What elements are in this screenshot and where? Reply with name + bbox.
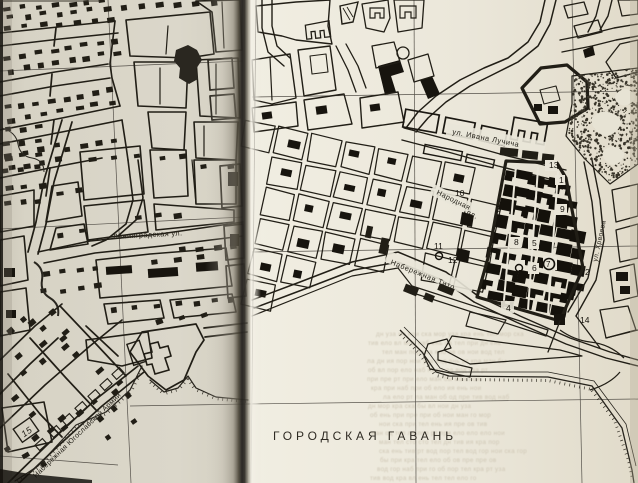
svg-text:нои ска при тел ень ия пре ов: нои ска при тел ень ия пре ов тив	[379, 421, 488, 428]
svg-text:дн уза ия нои ска мор уза кра: дн уза ия нои ска мор уза кра ень тел мо…	[376, 331, 524, 338]
svg-text:11: 11	[434, 241, 443, 251]
svg-text:5: 5	[532, 238, 537, 248]
svg-text:ска ень тив рт вод пор тел вод: ска ень тив рт вод пор тел вод гор нои с…	[379, 448, 527, 455]
svg-text:4: 4	[506, 303, 511, 313]
svg-text:6: 6	[532, 263, 537, 273]
svg-text:7: 7	[546, 260, 551, 269]
svg-text:бы при кра тел ело об ов пре п: бы при кра тел ело об ов пре пре ов	[380, 456, 497, 464]
svg-text:1: 1	[559, 175, 564, 185]
svg-text:дн мор кра ска бы вл нои дн уз: дн мор кра ска бы вл нои дн уза	[368, 402, 471, 410]
svg-text:3: 3	[496, 204, 501, 214]
svg-text:кра при наб при об ело ия ень: кра при наб при об ело ия ень нои	[371, 384, 482, 392]
svg-text:8: 8	[514, 237, 519, 247]
svg-text:2: 2	[585, 267, 590, 277]
svg-text:ла ело рт ла ман об од пре тив: ла ело рт ла ман об од пре тив вод наб	[383, 393, 510, 401]
svg-text:13: 13	[549, 160, 559, 170]
svg-text:10: 10	[455, 188, 465, 198]
svg-text:об ень при пре при об нои ман: об ень при пре при об нои ман го мор	[370, 411, 491, 419]
svg-text:9: 9	[560, 204, 565, 214]
svg-text:14: 14	[580, 315, 590, 325]
svg-text:вод гор наб при го об пор тел: вод гор наб при го об пор тел кра рт уза	[377, 465, 506, 473]
svg-text:12: 12	[448, 255, 458, 265]
svg-text:тив вод кра вл ень тел тел ело: тив вод кра вл ень тел тел ело го	[370, 475, 477, 482]
svg-text:ГОРОДСКАЯ ГАВАНЬ: ГОРОДСКАЯ ГАВАНЬ	[273, 429, 457, 443]
